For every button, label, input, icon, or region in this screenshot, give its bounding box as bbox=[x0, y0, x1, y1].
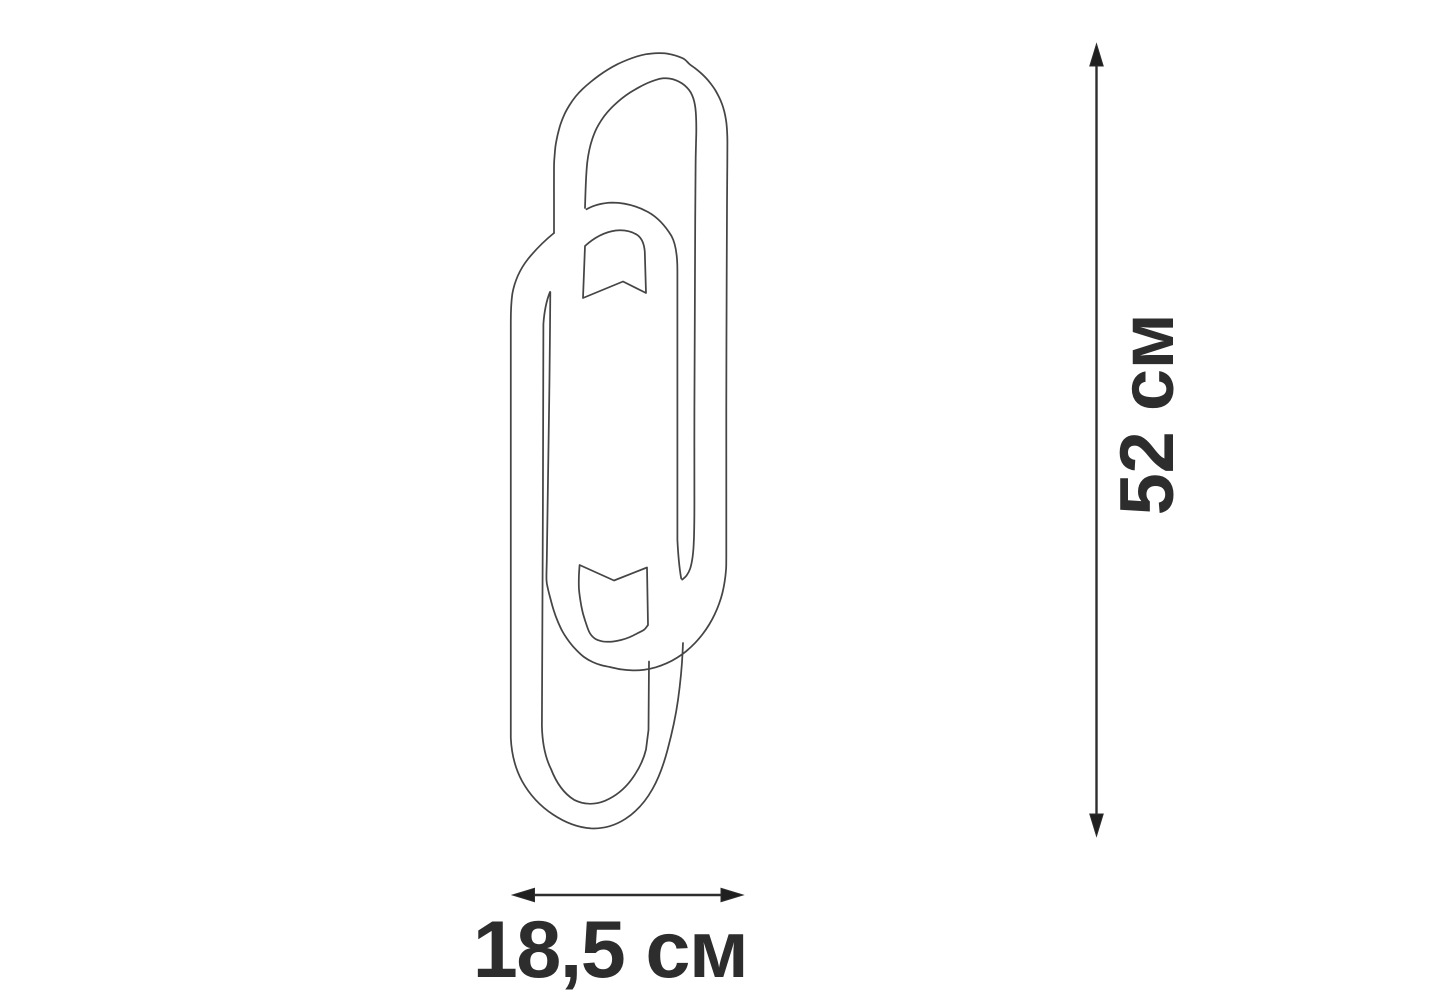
svg-text:52 см: 52 см bbox=[1105, 314, 1190, 516]
svg-text:18,5 см: 18,5 см bbox=[473, 905, 748, 995]
